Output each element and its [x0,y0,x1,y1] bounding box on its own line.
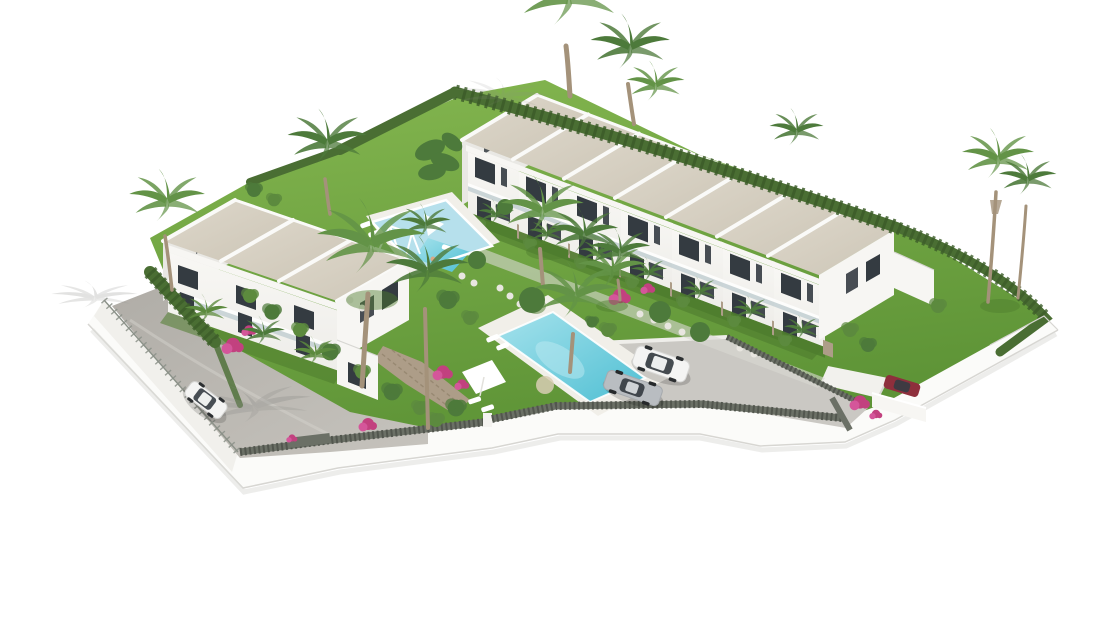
pool-beach-entry [536,376,554,394]
palm-tree [515,0,623,25]
tall-palm [962,128,1034,178]
palm-tree [129,169,205,222]
render-image [0,0,1110,623]
palm-tree [591,14,670,69]
palm-tree [770,108,824,146]
complex-render [0,0,1110,623]
fence-pillar [483,413,492,427]
palm-tree [627,61,685,101]
